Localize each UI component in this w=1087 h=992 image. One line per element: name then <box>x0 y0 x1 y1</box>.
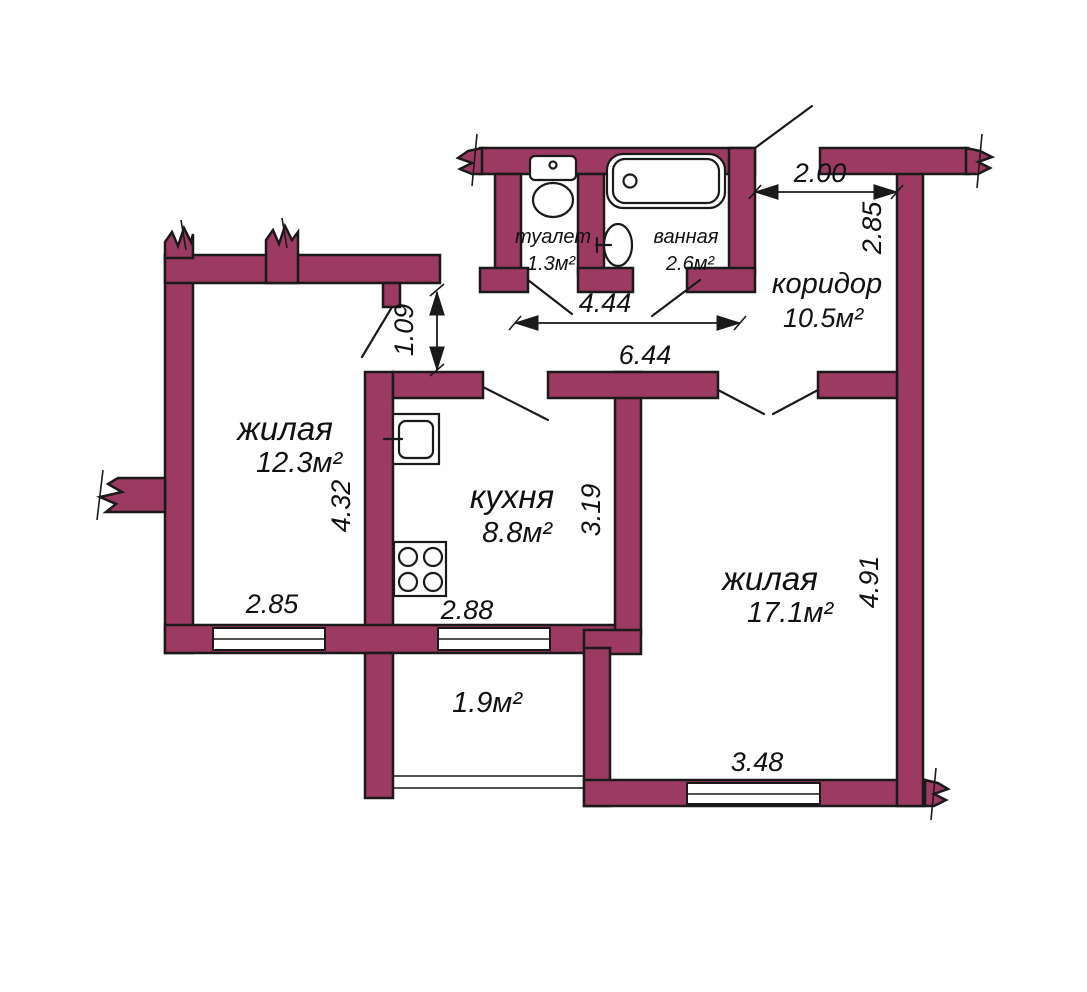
wall-segment <box>495 174 521 274</box>
door-living-small <box>362 307 392 357</box>
wall-segment <box>897 158 923 806</box>
kitchen-sink-icon <box>384 414 439 464</box>
dim-line-1-09 <box>430 284 444 376</box>
wall-break-icon <box>165 228 193 258</box>
wall-segment <box>480 268 528 292</box>
wall-segment <box>393 372 483 398</box>
door-entrance <box>755 106 812 148</box>
wall-break-icon <box>458 148 482 174</box>
window-living-large <box>687 783 820 804</box>
dim-6-44-label: 6.44 <box>619 340 672 370</box>
toilet-name-label: туалет <box>515 226 591 248</box>
window-living-small <box>213 628 325 650</box>
door-living-large-right <box>773 390 818 414</box>
dim-4-91-label: 4.91 <box>854 556 884 609</box>
bathroom-name-label: ванная <box>654 226 719 248</box>
dim-1-09-label: 1.09 <box>389 304 419 357</box>
living-small-area-label: 12.3м² <box>256 447 343 479</box>
wall-break-icon <box>266 226 298 283</box>
wall-segment <box>365 653 393 798</box>
door-living-large-left <box>718 390 764 414</box>
wall-segment <box>165 255 440 283</box>
dim-2-88-label: 2.88 <box>440 595 494 625</box>
door-kitchen <box>483 387 548 420</box>
window-kitchen <box>438 628 550 650</box>
wall-segment <box>818 372 897 398</box>
dim-2-00-label: 2.00 <box>793 158 847 188</box>
wall-segment <box>615 372 641 634</box>
dim-3-48-label: 3.48 <box>731 747 784 777</box>
dim-line-4-44 <box>509 316 746 330</box>
wall-segment <box>383 283 400 307</box>
break-tick <box>97 470 103 520</box>
kitchen-name-label: кухня <box>470 478 554 515</box>
balcony-area-label: 1.9м² <box>452 687 523 719</box>
toilet-icon <box>530 156 576 217</box>
balcony-glazing <box>393 776 584 788</box>
living-large-name-label: жилая <box>720 560 818 597</box>
wall-break-icon <box>100 478 165 512</box>
floor-plan-svg: туалет 1.3м² ванная 2.6м² коридор 10.5м²… <box>0 0 1087 992</box>
wall-segment <box>578 174 604 274</box>
dim-4-44-label: 4.44 <box>579 288 632 318</box>
toilet-area-label: 1.3м² <box>527 253 577 275</box>
kitchen-area-label: 8.8м² <box>482 517 553 549</box>
dim-4-32-label: 4.32 <box>326 480 356 533</box>
wall-segment <box>729 148 755 274</box>
door-bathroom <box>652 280 700 316</box>
stove-icon <box>394 542 446 596</box>
bathtub-icon <box>607 154 725 208</box>
living-large-area-label: 17.1м² <box>747 597 834 629</box>
corridor-name-label: коридор <box>772 268 882 300</box>
wall-break-icon <box>925 780 948 806</box>
living-small-name-label: жилая <box>235 410 333 447</box>
dim-2-85-corridor-label: 2.85 <box>857 201 887 256</box>
wall-segment <box>548 372 718 398</box>
door-toilet <box>528 280 572 314</box>
wall-segment <box>165 255 193 653</box>
floor-plan-page: туалет 1.3м² ванная 2.6м² коридор 10.5м²… <box>0 0 1087 992</box>
dim-3-19-label: 3.19 <box>576 484 606 537</box>
corridor-area-label: 10.5м² <box>783 303 864 333</box>
bathroom-area-label: 2.6м² <box>665 253 716 275</box>
dim-2-85-window-label: 2.85 <box>245 589 300 619</box>
wall-segment <box>365 372 393 653</box>
